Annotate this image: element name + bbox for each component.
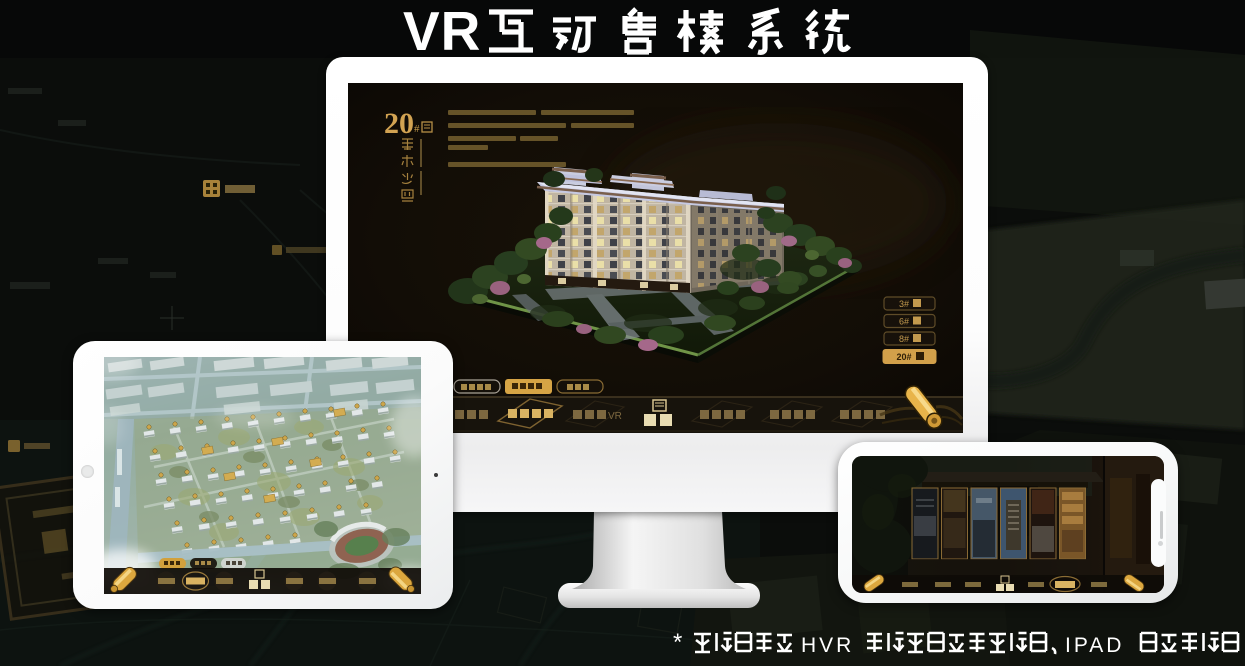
svg-text:VR: VR [403, 2, 481, 58]
svg-text:*: * [673, 629, 682, 656]
svg-text:8#: 8# [899, 334, 909, 344]
svg-text:VR: VR [608, 411, 622, 422]
svg-text:20#: 20# [896, 352, 911, 362]
svg-text:20: 20 [384, 107, 414, 140]
svg-text:#: # [414, 123, 420, 135]
svg-text:6#: 6# [899, 317, 909, 327]
svg-text:HVR: HVR [801, 634, 854, 657]
svg-text:3#: 3# [899, 299, 909, 309]
svg-text:IPAD: IPAD [1065, 634, 1124, 657]
